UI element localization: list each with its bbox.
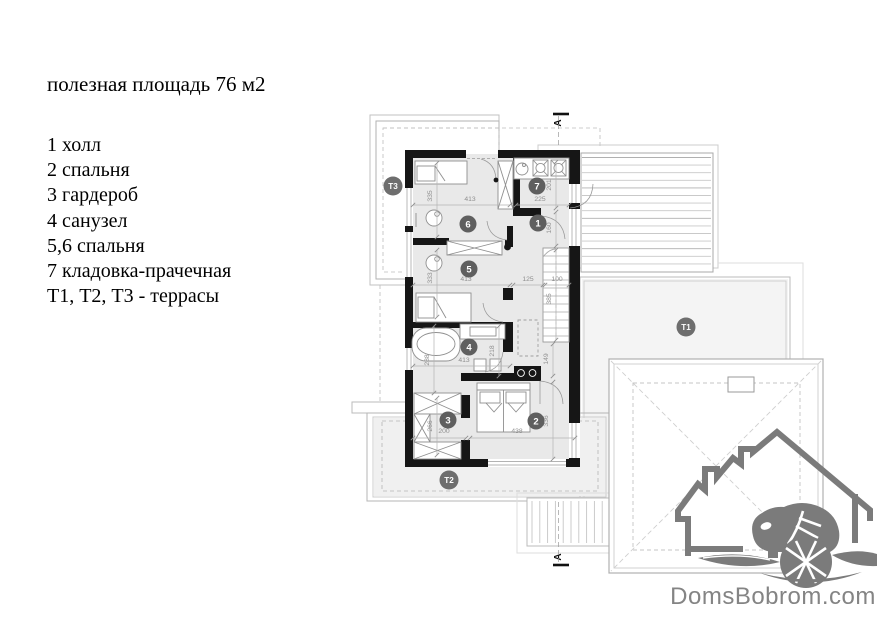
wall-room6-room5 [409,238,449,245]
dimension-text: 413 [464,196,476,203]
room-number-text: 2 [533,416,538,427]
dimension-text: 413 [458,357,470,364]
dimension-text: 160 [546,222,553,234]
room-number-text: 5 [466,264,472,275]
laundry-appliances [514,158,569,179]
dimension-text: 200 [438,428,450,435]
dimension-text: 438 [511,428,523,435]
chimney [728,377,754,392]
dimension-text: 266 [427,420,434,432]
dimension-text: 225 [534,196,546,203]
floor-plan-drawing: 3354132252011603334131251003852884132181… [0,0,877,620]
dimension-text: 125 [522,276,534,283]
dimension-text: 100 [551,276,563,283]
terrace-text: Т2 [444,476,454,485]
dimension-text: 201 [546,179,553,191]
logo-text: DomsBobrom.com [668,583,877,611]
dimension-text: 288 [424,354,431,366]
room-number-text: 6 [465,219,470,230]
room-number-text: 1 [535,218,541,229]
lower-deck-slats [517,493,620,553]
basin-room5 [426,255,442,271]
dimension-text: 335 [427,190,434,202]
terrace-text: Т3 [388,182,398,191]
room-number-text: 7 [534,181,539,192]
dimension-text: 149 [543,353,550,365]
room-number-text: 4 [466,342,472,353]
basin-room6 [426,210,442,226]
dimension-text: 385 [546,293,553,305]
dimension-text: 333 [427,272,434,284]
wall-room3-room2 [461,395,470,418]
dimension-text: 218 [489,345,496,357]
room-number-text: 3 [445,415,450,426]
floor-plan-page: полезная площадь 76 м2 1 холл2 спальня3 … [0,0,877,620]
wall-corridor [503,288,513,300]
terrace-text: Т1 [681,323,691,332]
